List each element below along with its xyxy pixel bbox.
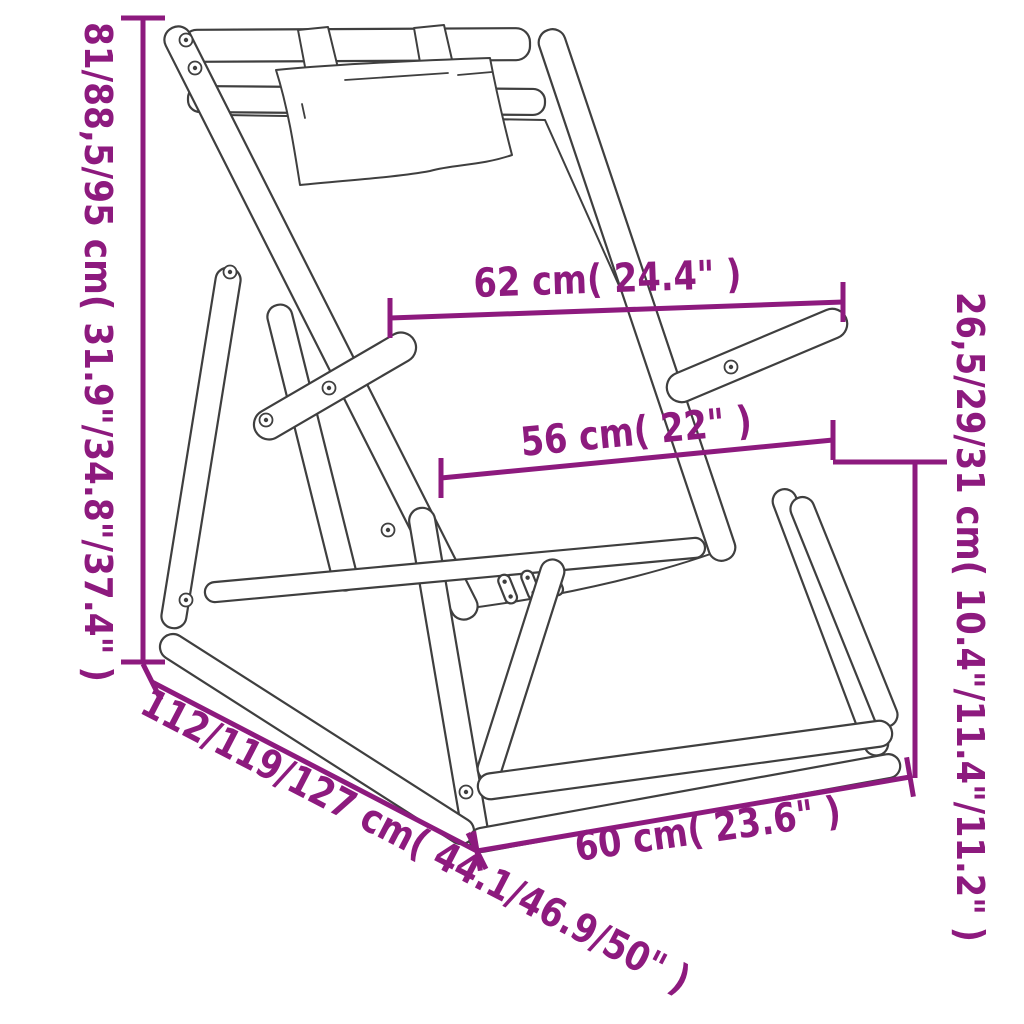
screw [382,524,395,537]
total-height-label: 81/88,5/95 cm( 31.9"/34.8"/37.4" ) [76,22,120,682]
right-armrest [662,304,852,407]
dimension-diagram: 81/88,5/95 cm( 31.9"/34.8"/37.4" ) 62 cm… [0,0,1024,1024]
screw [323,382,336,395]
screw [189,62,202,75]
deck-chair-diagram-canvas: 81/88,5/95 cm( 31.9"/34.8"/37.4" ) 62 cm… [0,0,1024,1024]
screw [224,266,237,279]
screw [180,594,193,607]
screw [725,361,738,374]
dimension-total-height: 81/88,5/95 cm( 31.9"/34.8"/37.4" ) [76,18,165,682]
screw [180,34,193,47]
left-rear-leg [160,266,243,630]
backrest-top-crossbar [183,28,530,62]
armrest-height-label: 26,5/29/31 cm( 10.4"/11.4"/11.2" ) [948,292,992,942]
screw [460,786,473,799]
back-width-label: 62 cm( 24.4" ) [473,252,742,307]
screw [260,414,273,427]
